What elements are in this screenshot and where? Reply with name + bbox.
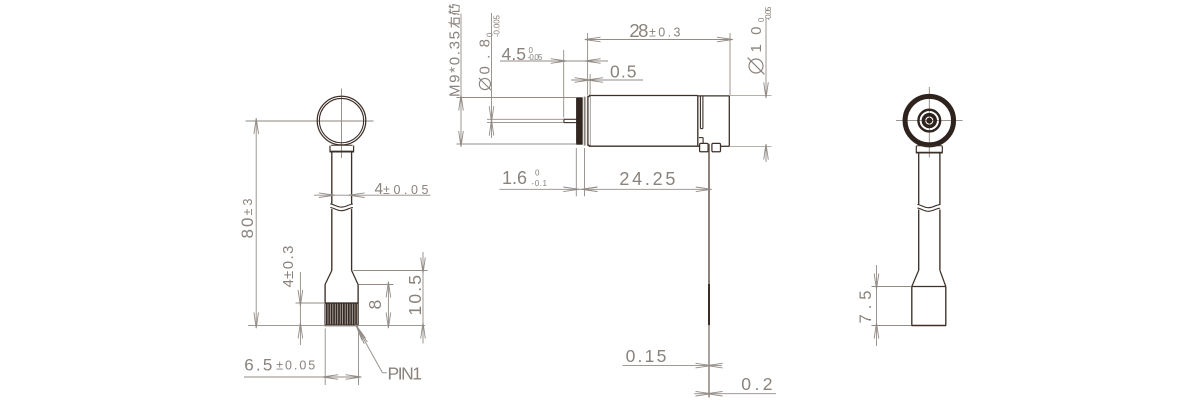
svg-text:±0.05: ±0.05: [383, 183, 429, 197]
svg-text:-0.05: -0.05: [528, 53, 544, 62]
svg-text:0.15: 0.15: [626, 346, 667, 366]
svg-text:-0.1: -0.1: [532, 179, 548, 188]
svg-text:±0.05: ±0.05: [276, 359, 315, 373]
svg-text:1.6: 1.6: [502, 168, 527, 188]
svg-text:±0.3: ±0.3: [649, 25, 681, 39]
svg-text:0.8: 0.8: [477, 39, 494, 75]
svg-text:4: 4: [280, 279, 297, 287]
svg-text:28: 28: [629, 20, 648, 41]
svg-text:0.2: 0.2: [741, 374, 772, 394]
svg-text:0.5: 0.5: [610, 62, 637, 82]
svg-text:6.5: 6.5: [244, 355, 272, 374]
svg-text:10.5: 10.5: [405, 275, 425, 316]
svg-text:24.25: 24.25: [619, 169, 675, 189]
svg-text:4.5: 4.5: [502, 44, 527, 64]
svg-text:-0.005: -0.005: [492, 14, 501, 37]
svg-text:0: 0: [535, 169, 540, 178]
svg-text:PIN1: PIN1: [388, 364, 424, 384]
svg-text:±0.3: ±0.3: [280, 246, 297, 280]
svg-text:7.5: 7.5: [857, 291, 875, 324]
svg-text:-0.05: -0.05: [764, 6, 773, 21]
svg-text:8: 8: [365, 300, 385, 310]
